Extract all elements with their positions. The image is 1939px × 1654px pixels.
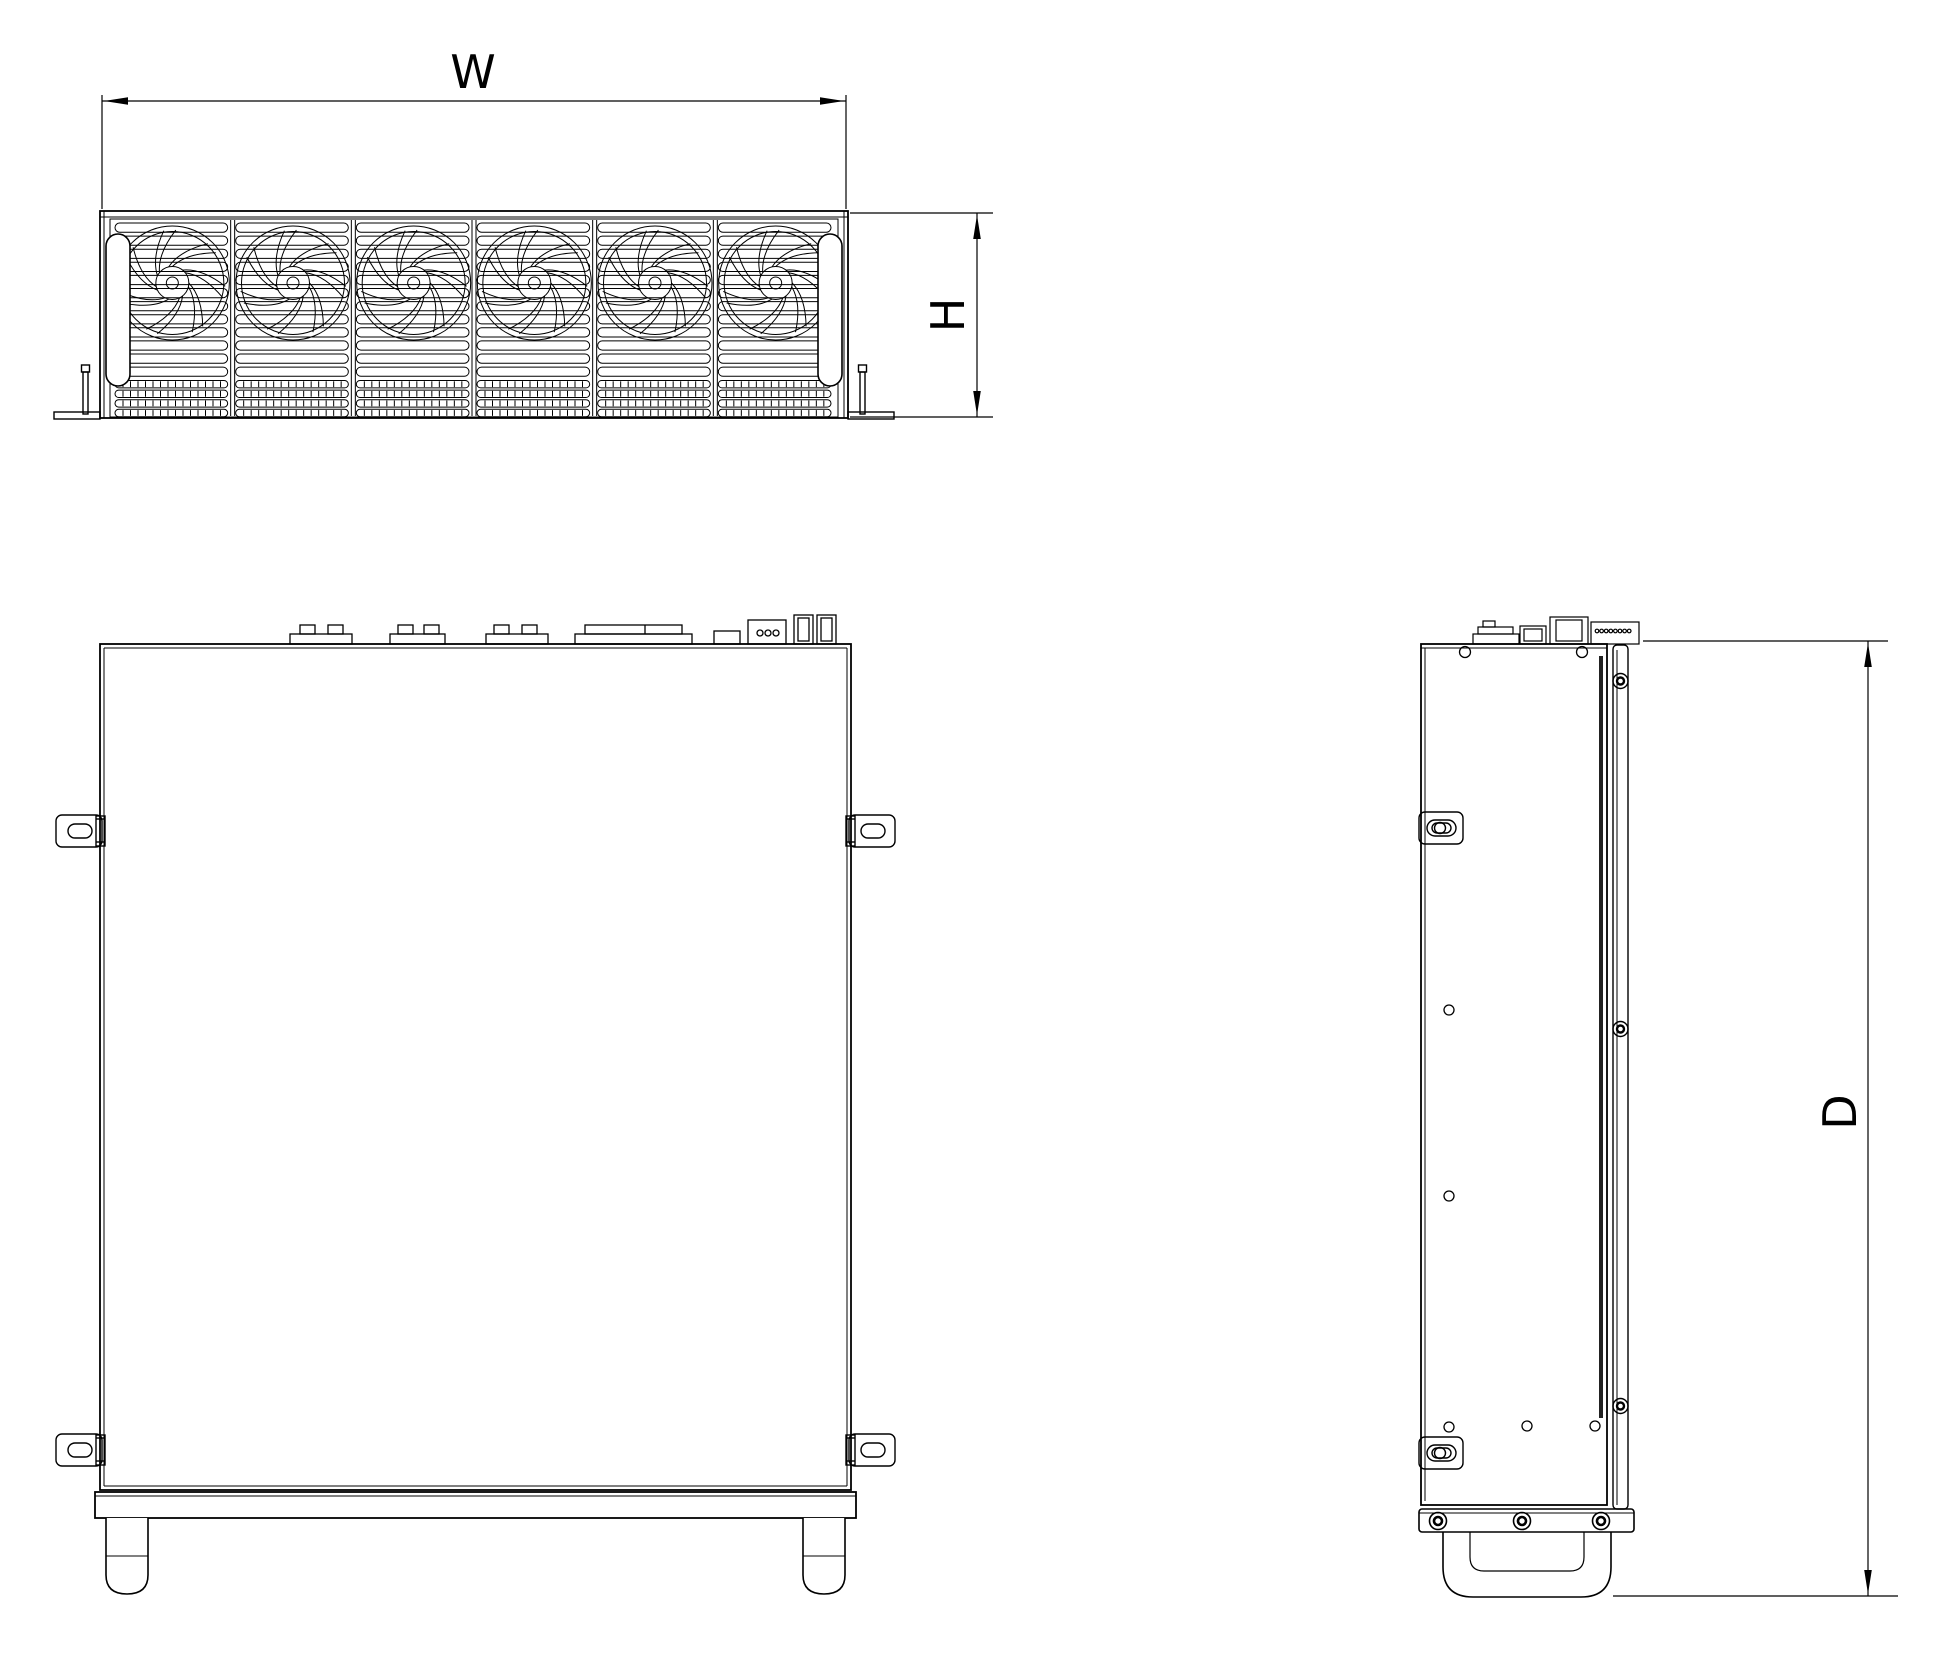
dim-label-h: H bbox=[921, 298, 975, 333]
vent-slot bbox=[236, 400, 349, 407]
side-body-outline bbox=[1421, 644, 1607, 1505]
w-arrowhead-left bbox=[104, 97, 128, 105]
fan-blade bbox=[172, 253, 215, 267]
grille-slot bbox=[115, 328, 228, 337]
side-rack-ear bbox=[1419, 1437, 1463, 1469]
terminal-strip-circles bbox=[1591, 622, 1639, 644]
vent-slot bbox=[718, 381, 831, 388]
fan-blade bbox=[133, 247, 156, 286]
vent-slot bbox=[718, 400, 831, 407]
front-right-rack-ear bbox=[848, 365, 894, 419]
grille-slot bbox=[356, 341, 469, 350]
grille-slot bbox=[356, 223, 469, 232]
vent-slot bbox=[477, 409, 590, 416]
grille-slot bbox=[598, 354, 711, 363]
dim-label-d: D bbox=[1813, 1094, 1867, 1129]
fan-blade bbox=[267, 298, 300, 329]
long-connector bbox=[575, 625, 692, 644]
terminal-block-1 bbox=[290, 625, 352, 644]
fan-blade bbox=[651, 244, 690, 267]
grille-slot bbox=[477, 367, 590, 376]
grille-slot bbox=[356, 354, 469, 363]
fan-ring-outer bbox=[719, 226, 833, 340]
grille-slot bbox=[236, 341, 349, 350]
grille-section bbox=[231, 220, 350, 417]
grille-slot bbox=[718, 354, 831, 363]
fan-blade bbox=[293, 253, 337, 267]
grille-section bbox=[593, 220, 712, 417]
fan-blade bbox=[727, 299, 772, 305]
grille-slot bbox=[477, 328, 590, 337]
fan-ring-outer bbox=[477, 226, 591, 340]
fan-blade bbox=[388, 298, 421, 329]
vent-slot bbox=[477, 390, 590, 397]
grille-slot bbox=[236, 367, 349, 376]
vent-slot bbox=[718, 390, 831, 397]
fan-blade bbox=[430, 287, 436, 332]
grille-slot bbox=[115, 354, 228, 363]
grille-slot bbox=[718, 302, 831, 311]
fan-blade bbox=[410, 244, 449, 267]
fan-blade bbox=[244, 299, 289, 305]
grille-slot bbox=[718, 223, 831, 232]
fan-blade bbox=[531, 244, 570, 267]
ear-slot bbox=[68, 824, 92, 838]
side-front-strip bbox=[1613, 645, 1628, 1509]
fan bbox=[598, 226, 712, 340]
vent-slot bbox=[236, 381, 349, 388]
grille-slot bbox=[598, 341, 711, 350]
vent-slot bbox=[477, 381, 590, 388]
ear-fastener bbox=[1435, 1448, 1446, 1459]
fan-blade bbox=[495, 247, 518, 286]
vent-slot bbox=[115, 390, 228, 397]
w-arrowhead-right bbox=[820, 97, 844, 105]
grille-slot bbox=[115, 341, 228, 350]
fan-grille bbox=[115, 220, 833, 417]
grille-slot bbox=[115, 367, 228, 376]
fan-blade bbox=[430, 283, 444, 326]
fan-blade bbox=[146, 298, 179, 329]
vent-slot bbox=[477, 400, 590, 407]
strip-screw-3 bbox=[1613, 1399, 1628, 1414]
mounting-ears bbox=[56, 815, 895, 1466]
vent-slot bbox=[356, 400, 469, 407]
fan-blade bbox=[485, 299, 531, 305]
grille-slot bbox=[477, 341, 590, 350]
fan-blade bbox=[672, 283, 686, 326]
grille-section bbox=[351, 220, 470, 417]
technical-drawing-page: W H bbox=[0, 0, 1939, 1654]
side-screw-holes bbox=[1444, 647, 1600, 1433]
grille-slot bbox=[598, 328, 711, 337]
fan-hub-center bbox=[649, 277, 661, 289]
ear-slot bbox=[861, 824, 885, 838]
front-handle-legs bbox=[106, 1518, 845, 1594]
h-arrowhead-top bbox=[973, 215, 981, 239]
side-u-handle bbox=[1443, 1532, 1611, 1597]
fan-blade bbox=[776, 253, 820, 267]
grille-slot bbox=[356, 328, 469, 337]
top-body-outline bbox=[100, 644, 851, 1490]
fan-ring-outer bbox=[357, 226, 471, 340]
grille-slot bbox=[598, 302, 711, 311]
fan-blade bbox=[310, 283, 324, 326]
grille-slot bbox=[477, 354, 590, 363]
fan bbox=[719, 226, 833, 340]
side-rear-connectors bbox=[1473, 617, 1639, 644]
fan-blade bbox=[616, 247, 639, 286]
grille-slot bbox=[236, 223, 349, 232]
vent-slot bbox=[236, 390, 349, 397]
power-connector bbox=[748, 620, 786, 644]
fan-hub-center bbox=[166, 277, 178, 289]
d-arrowhead-top bbox=[1864, 643, 1872, 667]
fan-hub-center bbox=[408, 277, 420, 289]
rack-ear bbox=[56, 1434, 105, 1466]
fan-ring-outer bbox=[115, 226, 229, 340]
fan-blade bbox=[365, 299, 410, 305]
dimension-w bbox=[102, 95, 846, 209]
vent-slot bbox=[115, 409, 228, 416]
front-left-rack-ear bbox=[54, 365, 100, 419]
vent-slot bbox=[236, 409, 349, 416]
fan-blade bbox=[375, 247, 398, 286]
fan-blade bbox=[508, 298, 541, 329]
grille-section bbox=[713, 220, 832, 417]
small-connector bbox=[714, 631, 740, 644]
fan-blade bbox=[606, 299, 651, 305]
fan-blade bbox=[792, 287, 798, 332]
vent-slot bbox=[718, 409, 831, 416]
fan-blade bbox=[792, 283, 806, 326]
grille-slot bbox=[236, 302, 349, 311]
ear-fastener bbox=[1435, 823, 1446, 834]
fan-hub-center bbox=[528, 277, 540, 289]
grille-slot bbox=[236, 354, 349, 363]
ear-slot bbox=[861, 1443, 885, 1457]
fan-blade bbox=[254, 247, 277, 286]
fan-blade bbox=[550, 287, 556, 332]
vent-slot bbox=[598, 381, 711, 388]
fan-ring-outer bbox=[598, 226, 712, 340]
fan-hub-center bbox=[287, 277, 299, 289]
fan-ring-outer bbox=[236, 226, 350, 340]
side-view bbox=[1419, 617, 1639, 1597]
side-bottom-bar bbox=[1419, 1509, 1634, 1532]
grille-slot bbox=[477, 223, 590, 232]
h-arrowhead-bottom bbox=[973, 391, 981, 415]
grille-slot bbox=[598, 223, 711, 232]
vent-slot bbox=[598, 390, 711, 397]
fan-blade bbox=[309, 287, 315, 332]
fan-blade bbox=[671, 287, 677, 332]
strip-screw-1 bbox=[1613, 674, 1628, 689]
fan-blade bbox=[772, 244, 811, 267]
d-arrowhead-bottom bbox=[1864, 1570, 1872, 1594]
vent-slot bbox=[598, 409, 711, 416]
vent-slot bbox=[598, 400, 711, 407]
front-bar bbox=[95, 1492, 856, 1518]
fan-blade bbox=[534, 253, 577, 267]
fan-blade bbox=[629, 298, 662, 329]
side-shadow-strip bbox=[1599, 656, 1603, 1418]
vent-slot bbox=[356, 381, 469, 388]
fan bbox=[236, 226, 350, 340]
ear-slot bbox=[68, 1443, 92, 1457]
vent-slot bbox=[115, 381, 228, 388]
rack-ear bbox=[846, 1434, 895, 1466]
fan bbox=[115, 226, 229, 340]
front-view bbox=[54, 211, 894, 419]
front-right-handle bbox=[818, 234, 842, 386]
fan bbox=[357, 226, 471, 340]
vent-slot bbox=[356, 390, 469, 397]
front-left-handle bbox=[106, 234, 130, 386]
dim-label-w: W bbox=[450, 45, 495, 99]
grille-slot bbox=[718, 341, 831, 350]
grille-slot bbox=[598, 367, 711, 376]
bus-bar-terminals bbox=[794, 615, 836, 644]
grille-slot bbox=[718, 367, 831, 376]
grille-slot bbox=[718, 328, 831, 337]
fan-blade bbox=[737, 247, 760, 286]
grille-slot bbox=[356, 302, 469, 311]
grille-section bbox=[115, 223, 229, 417]
top-view bbox=[56, 615, 895, 1594]
grille-slot bbox=[115, 223, 228, 232]
terminal-block-2 bbox=[390, 625, 445, 644]
rack-ear bbox=[846, 815, 895, 847]
vent-slot bbox=[356, 409, 469, 416]
fan-blade bbox=[189, 283, 203, 326]
rear-connectors bbox=[290, 615, 836, 644]
strip-screw-2 bbox=[1613, 1022, 1628, 1037]
fan-blade bbox=[482, 291, 527, 299]
rack-ear bbox=[56, 815, 105, 847]
three-view-drawing: W H bbox=[0, 0, 1939, 1654]
grille-slot bbox=[356, 367, 469, 376]
side-rack-ear bbox=[1419, 812, 1463, 844]
bar-screw-1 bbox=[1430, 1513, 1447, 1530]
fan-blade bbox=[551, 283, 565, 326]
bar-screw-2 bbox=[1514, 1513, 1531, 1530]
fan-blade bbox=[289, 244, 328, 267]
fan-blade bbox=[188, 287, 194, 332]
grille-section bbox=[472, 220, 591, 417]
fan bbox=[477, 226, 591, 340]
fan-blade bbox=[169, 244, 208, 267]
vent-slot bbox=[115, 400, 228, 407]
fan-blade bbox=[750, 298, 783, 329]
grille-slot bbox=[236, 328, 349, 337]
fan-blade bbox=[414, 253, 458, 267]
fan-blade bbox=[655, 253, 699, 267]
grille-slot bbox=[477, 302, 590, 311]
terminal-block-3 bbox=[486, 625, 548, 644]
side-mounting-ears bbox=[1419, 812, 1463, 1469]
grille-slot bbox=[115, 302, 228, 311]
fan-hub-center bbox=[770, 277, 782, 289]
bar-screw-3 bbox=[1593, 1513, 1610, 1530]
